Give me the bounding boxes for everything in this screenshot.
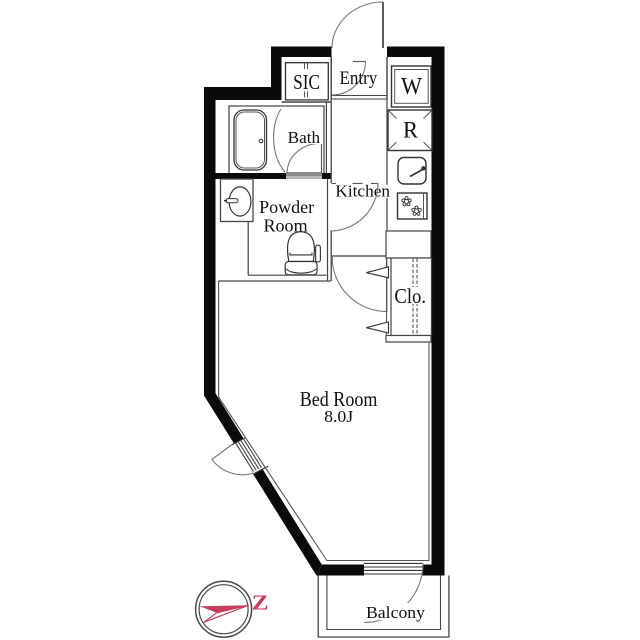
- svg-text:Clo.: Clo.: [394, 284, 426, 308]
- svg-text:Kitchen: Kitchen: [335, 182, 390, 201]
- svg-text:W: W: [401, 74, 422, 100]
- svg-text:Bath: Bath: [288, 128, 321, 147]
- svg-text:Powder: Powder: [259, 197, 314, 217]
- svg-text:R: R: [403, 117, 419, 142]
- svg-text:Balcony: Balcony: [366, 603, 425, 622]
- svg-text:SIC: SIC: [293, 70, 320, 94]
- svg-text:8.0J: 8.0J: [324, 407, 354, 426]
- svg-text:Z: Z: [252, 591, 269, 615]
- svg-text:Entry: Entry: [340, 68, 378, 89]
